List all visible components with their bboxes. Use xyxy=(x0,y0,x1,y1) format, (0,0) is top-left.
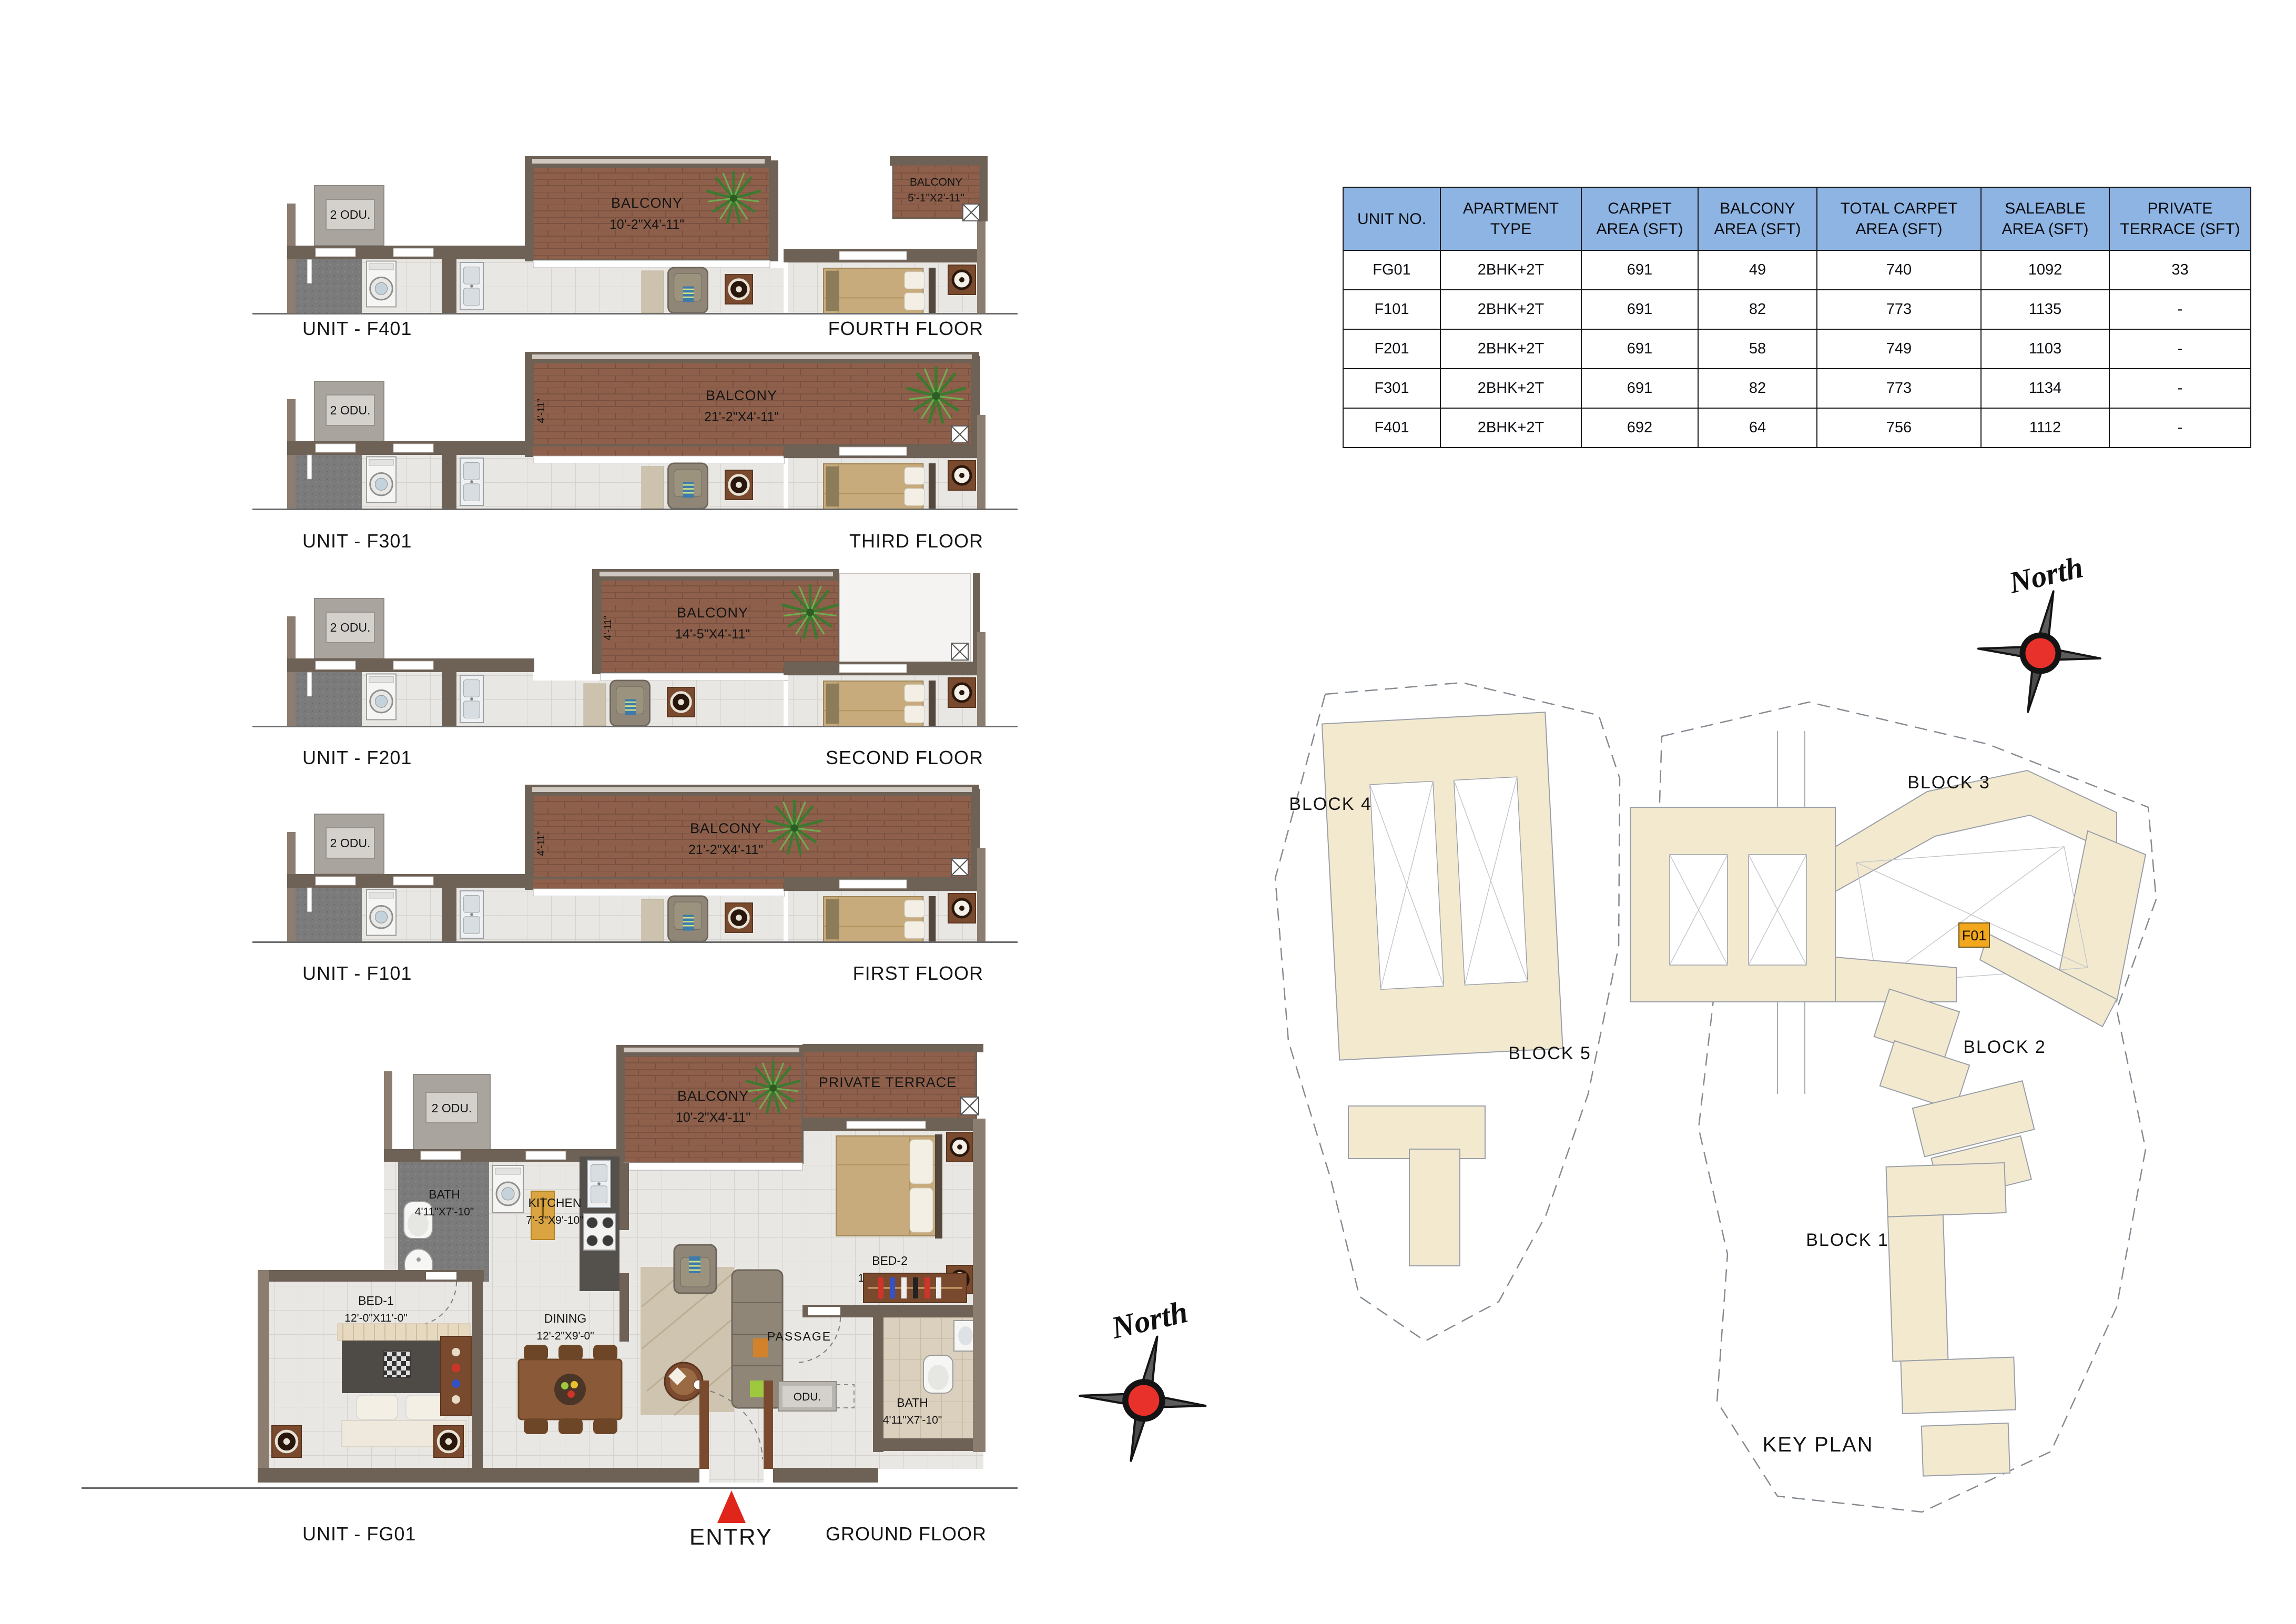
table-cell: - xyxy=(2109,329,2251,369)
table-cell: 773 xyxy=(1817,369,1981,408)
table-cell: - xyxy=(2109,369,2251,408)
bath1-label: BATH xyxy=(429,1187,460,1201)
odu-label: 2 ODU. xyxy=(330,836,371,850)
table-cell: 1103 xyxy=(1981,329,2109,369)
ground-line xyxy=(252,726,1018,727)
balcony-area xyxy=(601,580,839,673)
lift-icon xyxy=(951,859,968,876)
passage-label: PASSAGE xyxy=(767,1329,831,1343)
block3-label: BLOCK 3 xyxy=(1907,773,1990,793)
table-cell: 691 xyxy=(1581,329,1698,369)
table-cell: 1092 xyxy=(1981,250,2109,290)
entry-label: ENTRY xyxy=(678,1524,784,1550)
unit-label-f301: UNIT - F301 xyxy=(302,530,412,552)
balcony-dim: 10'-2"X4'-11" xyxy=(676,1110,750,1125)
table-cell: 1134 xyxy=(1981,369,2109,408)
table-cell: 692 xyxy=(1581,408,1698,448)
plan-fg01: BALCONY 10'-2"X4'-11" PRIVATE TERRACE 2 … xyxy=(226,1044,1025,1496)
bath2-label: BATH xyxy=(897,1396,928,1409)
area-table-body: FG012BHK+2T69149740109233F1012BHK+2T6918… xyxy=(1343,250,2251,448)
kitchen-label: KITCHEN xyxy=(529,1196,582,1210)
table-cell: 691 xyxy=(1581,250,1698,290)
table-header-cell: APARTMENT TYPE xyxy=(1440,187,1581,250)
private-terrace-label: PRIVATE TERRACE xyxy=(819,1074,957,1090)
odu-small-label: ODU. xyxy=(794,1391,821,1403)
balcony-dim: 10'-2"X4'-11" xyxy=(609,217,684,232)
balcony-side-dim: 4'-11" xyxy=(536,399,547,423)
floor-label-first: FIRST FLOOR xyxy=(799,962,983,984)
dining-label: DINING xyxy=(544,1312,587,1325)
table-cell: 691 xyxy=(1581,290,1698,329)
block5-label: BLOCK 5 xyxy=(1508,1043,1591,1063)
table-cell: FG01 xyxy=(1343,250,1440,290)
table-cell: F401 xyxy=(1343,408,1440,448)
balcony-label: BALCONY xyxy=(677,605,748,621)
key-plan-title: KEY PLAN xyxy=(1763,1433,1874,1456)
balcony-dim: 14'-5"X4'-11" xyxy=(675,627,750,642)
entry-marker xyxy=(717,1490,746,1523)
balcony-label: BALCONY xyxy=(677,1088,749,1104)
table-cell: 773 xyxy=(1817,290,1981,329)
balcony-label: BALCONY xyxy=(706,388,777,403)
unit-label-f101: UNIT - F101 xyxy=(302,962,412,984)
balcony2-dim: 5'-1"X2'-11" xyxy=(908,192,964,204)
floor-label-third: THIRD FLOOR xyxy=(799,530,983,552)
block5-building xyxy=(1348,1106,1485,1266)
table-header-cell: CARPET AREA (SFT) xyxy=(1581,187,1698,250)
block1-building xyxy=(1886,1163,2018,1477)
table-cell: 2BHK+2T xyxy=(1440,408,1581,448)
table-cell: F301 xyxy=(1343,369,1440,408)
table-cell: 64 xyxy=(1698,408,1817,448)
dining-dim: 12'-2"X9'-0" xyxy=(536,1330,594,1342)
table-row: F4012BHK+2T692647561112- xyxy=(1343,408,2251,448)
balcony-area xyxy=(624,1055,802,1163)
table-cell: 1135 xyxy=(1981,290,2109,329)
table-cell: 2BHK+2T xyxy=(1440,329,1581,369)
bath1-dim: 4'11"X7'-10" xyxy=(415,1206,474,1218)
balcony-label: BALCONY xyxy=(690,820,761,836)
plan-f201: 2 ODU. BALCONY 14'-5"X4'-11" 4'-11" xyxy=(237,554,1025,728)
unit-label-f401: UNIT - F401 xyxy=(302,318,412,340)
table-cell: 33 xyxy=(2109,250,2251,290)
table-cell: 2BHK+2T xyxy=(1440,250,1581,290)
table-cell: 740 xyxy=(1817,250,1981,290)
table-header-cell: TOTAL CARPET AREA (SFT) xyxy=(1817,187,1981,250)
table-cell: 82 xyxy=(1698,290,1817,329)
odu-label: 2 ODU. xyxy=(432,1101,472,1115)
table-cell: F201 xyxy=(1343,329,1440,369)
odu-label: 2 ODU. xyxy=(330,621,371,634)
table-header-cell: SALEABLE AREA (SFT) xyxy=(1981,187,2109,250)
table-cell: 49 xyxy=(1698,250,1817,290)
kitchen-dim: 7'-3"X9'-10" xyxy=(526,1214,583,1226)
balcony-dim: 21'-2"X4'-11" xyxy=(704,410,779,424)
table-cell: 756 xyxy=(1817,408,1981,448)
table-header-cell: PRIVATE TERRACE (SFT) xyxy=(2109,187,2251,250)
table-cell: 691 xyxy=(1581,369,1698,408)
table-header-cell: UNIT NO. xyxy=(1343,187,1440,250)
table-cell: 2BHK+2T xyxy=(1440,290,1581,329)
unit-label-fg01: UNIT - FG01 xyxy=(302,1523,416,1545)
lift-icon xyxy=(961,1097,979,1115)
table-row: FG012BHK+2T69149740109233 xyxy=(1343,250,2251,290)
plan-f401: 2 ODU. BALCONY 10'-2"X4'-11" BALCONY 5'-… xyxy=(237,141,1025,315)
table-cell: 749 xyxy=(1817,329,1981,369)
area-table: UNIT NO. APARTMENT TYPE CARPET AREA (SFT… xyxy=(1343,187,2251,448)
odu-label: 2 ODU. xyxy=(330,403,371,417)
ground-line xyxy=(252,941,1018,943)
bed1-label: BED-1 xyxy=(358,1294,394,1307)
balcony-dim: 21'-2"X4'-11" xyxy=(688,843,763,857)
table-row: F3012BHK+2T691827731134- xyxy=(1343,369,2251,408)
balcony-side-dim: 4'-11" xyxy=(603,616,614,641)
ground-line xyxy=(252,509,1018,510)
table-cell: - xyxy=(2109,290,2251,329)
table-cell: 1112 xyxy=(1981,408,2109,448)
lift-icon xyxy=(951,643,968,660)
balcony-label: BALCONY xyxy=(611,195,683,211)
f01-label: F01 xyxy=(1962,928,1987,943)
floor-label-fourth: FOURTH FLOOR xyxy=(799,318,983,340)
f01-marker: F01 xyxy=(1959,923,1989,947)
block3-building xyxy=(1630,770,2146,1027)
table-cell: 82 xyxy=(1698,369,1817,408)
table-header-row: UNIT NO. APARTMENT TYPE CARPET AREA (SFT… xyxy=(1343,187,2251,250)
block2-label: BLOCK 2 xyxy=(1963,1037,2046,1057)
balcony2-label: BALCONY xyxy=(910,176,962,188)
lift-icon xyxy=(951,426,968,443)
table-row: F2012BHK+2T691587491103- xyxy=(1343,329,2251,369)
table-row: F1012BHK+2T691827731135- xyxy=(1343,290,2251,329)
bed1-dim: 12'-0"X11'-0" xyxy=(344,1312,407,1324)
block4-building xyxy=(1322,712,1563,1060)
unit-label-f201: UNIT - F201 xyxy=(302,747,412,769)
table-cell: - xyxy=(2109,408,2251,448)
key-plan: F01 BLOCK 4 BLOCK 5 BLOCK 3 BLOCK 2 BLOC… xyxy=(1252,673,2177,1525)
floor-label-second: SECOND FLOOR xyxy=(799,747,983,769)
table-header-cell: BALCONY AREA (SFT) xyxy=(1698,187,1817,250)
floor-label-ground: GROUND FLOOR xyxy=(826,1523,983,1545)
table-cell: 2BHK+2T xyxy=(1440,369,1581,408)
ground-line xyxy=(82,1487,1018,1489)
plan-f101: 2 ODU. BALCONY 21'-2"X4'-11" 4'-11" xyxy=(237,770,1025,943)
ground-line xyxy=(252,313,1018,314)
plan-f301: 2 ODU. BALCONY 21'-2"X4'-11" 4'-11" xyxy=(237,337,1025,511)
block4-label: BLOCK 4 xyxy=(1289,794,1372,814)
balcony-side-dim: 4'-11" xyxy=(536,831,547,856)
floor-plan-sheet: North 2 ODU. BALCONY 10'-2"X4'-11" xyxy=(0,0,2296,1624)
odu-label: 2 ODU. xyxy=(330,208,371,221)
block1-label: BLOCK 1 xyxy=(1806,1230,1889,1250)
bath2-dim: 4'11"X7'-10" xyxy=(883,1414,942,1426)
table-cell: F101 xyxy=(1343,290,1440,329)
north-compass-icon xyxy=(1062,1296,1225,1475)
bed2-label: BED-2 xyxy=(872,1254,908,1267)
lift-icon xyxy=(963,204,980,221)
table-cell: 58 xyxy=(1698,329,1817,369)
